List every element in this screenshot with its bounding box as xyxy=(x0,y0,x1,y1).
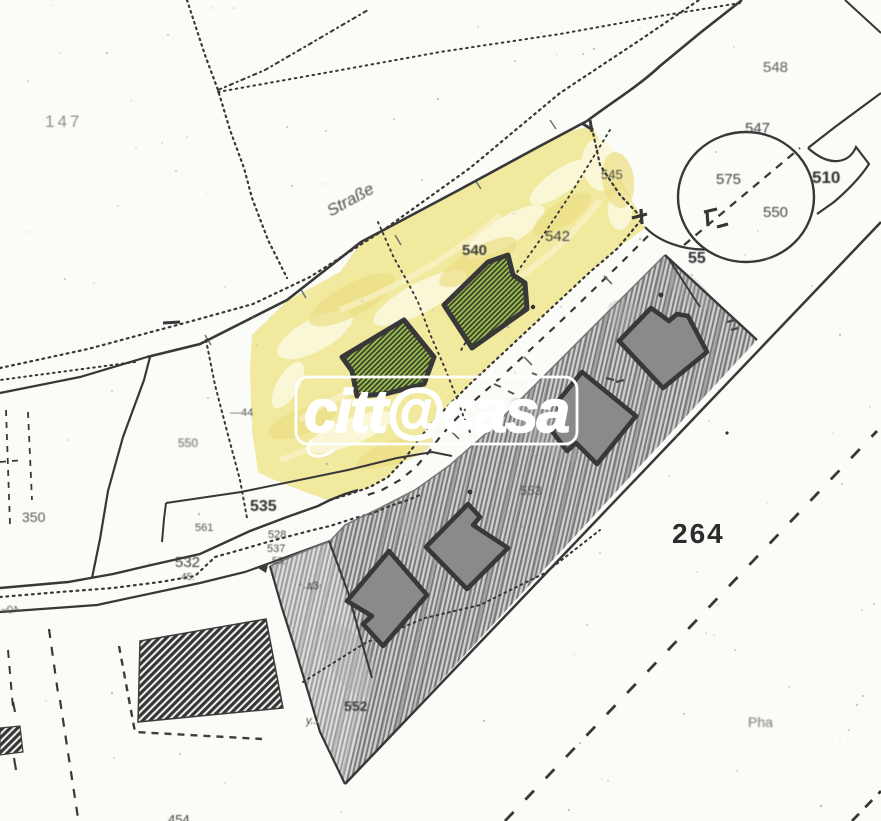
svg-text:552: 552 xyxy=(344,698,368,714)
svg-text:—44: —44 xyxy=(230,407,253,419)
svg-text:53.: 53. xyxy=(272,556,286,567)
svg-text:264: 264 xyxy=(672,518,725,549)
svg-text:350: 350 xyxy=(22,509,46,525)
svg-text:510: 510 xyxy=(812,168,840,187)
svg-text:545: 545 xyxy=(601,167,623,182)
svg-text:547​: 547​ xyxy=(745,120,770,137)
svg-text:55: 55 xyxy=(688,250,706,267)
svg-text:45.: 45. xyxy=(181,572,195,583)
svg-text:citt@casa: citt@casa xyxy=(304,378,569,445)
svg-text:553: 553 xyxy=(520,483,542,498)
svg-text:y..: y.. xyxy=(305,715,317,727)
svg-text:561: 561 xyxy=(195,522,213,534)
svg-text:537: 537 xyxy=(267,543,285,555)
svg-text:532: 532 xyxy=(175,554,200,571)
svg-text:147: 147 xyxy=(45,112,82,131)
svg-text:542: 542 xyxy=(545,228,570,245)
svg-text:Pha: Pha xyxy=(748,714,773,730)
svg-text:575: 575 xyxy=(716,171,741,188)
svg-text:540: 540 xyxy=(462,242,487,259)
svg-text:550: 550 xyxy=(763,204,788,221)
svg-text:454: 454 xyxy=(168,812,190,821)
svg-text:550: 550 xyxy=(178,436,198,450)
svg-text:548: 548 xyxy=(763,59,788,76)
svg-text:528: 528 xyxy=(268,529,286,541)
svg-text:535: 535 xyxy=(250,498,277,515)
